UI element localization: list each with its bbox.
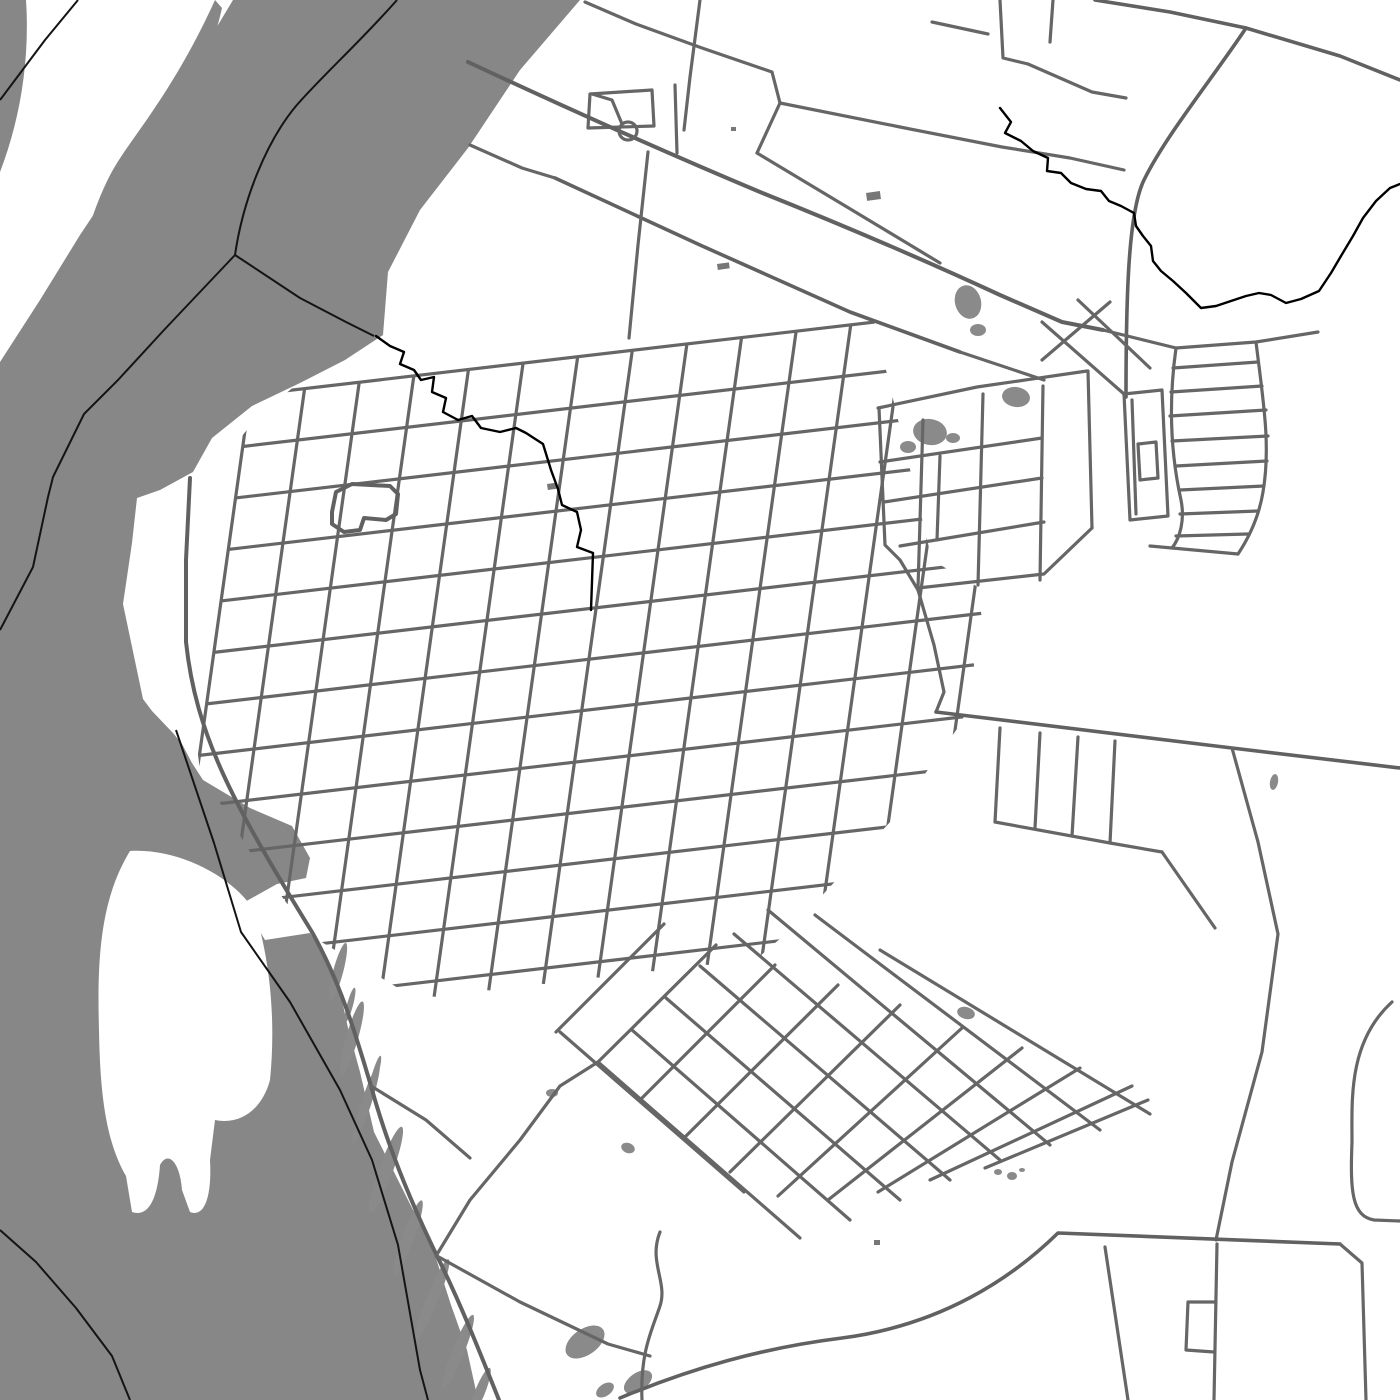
wood-patch: [1007, 1172, 1017, 1180]
building-footprint: [731, 127, 736, 131]
wood-patch: [994, 1169, 1002, 1175]
road: [1176, 534, 1248, 536]
wood-patch: [946, 433, 960, 443]
wood-patch: [900, 441, 916, 453]
wood-patch: [1019, 1168, 1025, 1172]
building-footprint: [874, 1240, 880, 1245]
wood-patch: [970, 324, 986, 336]
map-canvas: [0, 0, 1400, 1400]
city-map-image: [0, 0, 1400, 1400]
road: [675, 85, 677, 153]
